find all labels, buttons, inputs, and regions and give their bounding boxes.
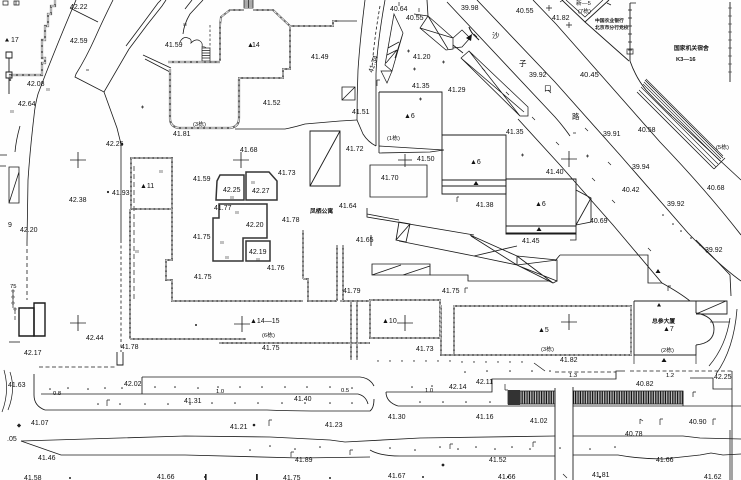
svg-text:41.35: 41.35 (412, 83, 430, 90)
svg-text:42.14: 42.14 (449, 384, 467, 391)
svg-text:41.58: 41.58 (24, 475, 42, 480)
svg-text:41.49: 41.49 (311, 54, 329, 61)
svg-text:9: 9 (8, 222, 12, 229)
svg-text:41.81: 41.81 (173, 131, 191, 138)
svg-text:41.89: 41.89 (295, 457, 313, 464)
svg-text:沙: 沙 (492, 31, 500, 40)
svg-text:总参大厦: 总参大厦 (652, 317, 675, 325)
svg-text:40.64: 40.64 (390, 6, 408, 13)
svg-text:42.20: 42.20 (20, 227, 38, 234)
svg-text:40.78: 40.78 (625, 431, 643, 438)
svg-text:口: 口 (544, 84, 552, 93)
svg-text:42.11: 42.11 (476, 379, 493, 386)
svg-text:41.81: 41.81 (592, 472, 610, 479)
svg-text:K3—16: K3—16 (676, 57, 696, 63)
svg-text:42.08: 42.08 (27, 81, 45, 88)
svg-text:42.27: 42.27 (252, 188, 270, 195)
svg-text:41.20: 41.20 (413, 54, 431, 61)
svg-text:42.38: 42.38 (69, 197, 87, 204)
svg-text:▲14—15: ▲14—15 (250, 318, 280, 325)
svg-text:17: 17 (11, 37, 19, 44)
svg-text:41.79: 41.79 (343, 288, 361, 295)
svg-text:42.25: 42.25 (714, 374, 732, 381)
svg-text:41.66: 41.66 (157, 474, 175, 480)
svg-text:(5栋): (5栋) (716, 143, 729, 151)
svg-text:41.82: 41.82 (560, 357, 578, 364)
svg-text:42.64: 42.64 (18, 101, 36, 108)
svg-text:0.8: 0.8 (53, 391, 61, 397)
svg-text:41.63: 41.63 (8, 382, 26, 389)
svg-text:41.70: 41.70 (381, 175, 399, 182)
svg-text:40.42: 40.42 (622, 187, 640, 194)
svg-text:41.07: 41.07 (31, 420, 49, 427)
svg-text:41.77: 41.77 (214, 205, 232, 212)
svg-text:41.29: 41.29 (448, 87, 466, 94)
svg-text:40.55: 40.55 (406, 15, 424, 22)
svg-text:41.68: 41.68 (240, 147, 258, 154)
svg-text:41.73: 41.73 (278, 170, 296, 177)
svg-text:▲6: ▲6 (404, 113, 415, 120)
svg-text:39.98: 39.98 (461, 5, 479, 12)
svg-text:41.75: 41.75 (194, 274, 212, 281)
svg-text:路: 路 (572, 111, 580, 121)
svg-text:(3栋): (3栋) (193, 120, 206, 128)
svg-text:42.59: 42.59 (70, 38, 88, 45)
svg-text:41.34: 41.34 (368, 55, 380, 74)
svg-text:▲6: ▲6 (470, 159, 481, 166)
svg-text:41.46: 41.46 (38, 455, 56, 462)
svg-text:41.21: 41.21 (230, 424, 248, 431)
svg-text:42.25: 42.25 (106, 141, 124, 148)
svg-text:42.44: 42.44 (86, 335, 104, 342)
svg-text:1.0: 1.0 (216, 389, 224, 395)
svg-text:▲5: ▲5 (538, 327, 549, 334)
svg-text:41.40: 41.40 (294, 396, 312, 403)
svg-text:42.20: 42.20 (246, 222, 264, 229)
svg-text:(7栋): (7栋) (578, 7, 591, 15)
svg-text:41.45: 41.45 (522, 238, 540, 245)
svg-text:40.55: 40.55 (516, 8, 534, 15)
svg-text:40.45: 40.45 (580, 70, 599, 79)
svg-text:41.52: 41.52 (263, 100, 281, 107)
svg-text:41.93: 41.93 (112, 190, 130, 197)
svg-text:41.16: 41.16 (476, 414, 494, 421)
svg-text:41.40: 41.40 (546, 169, 564, 176)
svg-text:42.25: 42.25 (223, 187, 241, 194)
svg-text:中国农业银行: 中国农业银行 (595, 17, 624, 24)
svg-text:41.23: 41.23 (325, 422, 343, 429)
svg-text:39.92: 39.92 (705, 247, 723, 254)
svg-text:41.38: 41.38 (476, 202, 494, 209)
svg-text:新—5: 新—5 (576, 0, 591, 7)
svg-text:.05: .05 (7, 436, 17, 443)
svg-text:▲7: ▲7 (663, 326, 674, 333)
svg-text:41.50: 41.50 (417, 156, 435, 163)
svg-text:75: 75 (10, 284, 16, 290)
svg-text:41.76: 41.76 (267, 265, 285, 272)
svg-text:41.72: 41.72 (346, 146, 364, 153)
svg-text:40.58: 40.58 (638, 127, 656, 134)
svg-text:41.75: 41.75 (442, 288, 460, 295)
svg-text:40.69: 40.69 (590, 218, 608, 225)
svg-text:39.94: 39.94 (632, 164, 650, 171)
svg-text:42.02: 42.02 (124, 381, 142, 388)
svg-text:▲6: ▲6 (535, 201, 546, 208)
svg-text:41.31: 41.31 (184, 398, 202, 405)
svg-text:41.75: 41.75 (283, 475, 301, 480)
svg-text:41.64: 41.64 (339, 203, 357, 210)
svg-text:▲11: ▲11 (140, 183, 154, 190)
svg-text:40.68: 40.68 (707, 185, 725, 192)
svg-text:北京市分行党校: 北京市分行党校 (595, 24, 629, 31)
svg-text:国家机关宿舍: 国家机关宿舍 (674, 44, 709, 52)
svg-text:41.75: 41.75 (193, 234, 211, 241)
svg-text:39.92: 39.92 (529, 72, 547, 79)
svg-text:41.59: 41.59 (193, 176, 211, 183)
svg-text:41.02: 41.02 (530, 418, 548, 425)
svg-text:(2栋): (2栋) (661, 346, 674, 354)
svg-text:(1栋): (1栋) (387, 134, 400, 142)
svg-text:42.19: 42.19 (249, 249, 267, 256)
svg-text:42.22: 42.22 (70, 4, 88, 11)
svg-text:40.90: 40.90 (689, 419, 707, 426)
svg-text:▲10: ▲10 (382, 318, 397, 325)
svg-text:41.78: 41.78 (282, 217, 300, 224)
svg-text:39.92: 39.92 (667, 201, 685, 208)
svg-text:(6栋): (6栋) (262, 331, 275, 339)
svg-text:1.0: 1.0 (425, 388, 433, 394)
svg-text:(3栋): (3栋) (541, 345, 554, 353)
svg-text:41.35: 41.35 (506, 129, 524, 136)
svg-text:41.73: 41.73 (416, 346, 434, 353)
svg-text:1.2: 1.2 (666, 373, 674, 379)
svg-text:41.67: 41.67 (388, 473, 406, 480)
svg-text:41.52: 41.52 (489, 457, 507, 464)
svg-text:41.78: 41.78 (121, 344, 139, 351)
svg-text:41.30: 41.30 (388, 414, 406, 421)
svg-text:41.62: 41.62 (704, 474, 722, 480)
svg-text:凤栖公寓: 凤栖公寓 (310, 207, 333, 215)
svg-text:子: 子 (519, 59, 527, 68)
svg-text:41.66: 41.66 (656, 457, 674, 464)
svg-text:41.66: 41.66 (498, 474, 516, 480)
svg-text:1.3: 1.3 (569, 373, 577, 379)
svg-text:0.5: 0.5 (341, 388, 349, 394)
svg-text:41.75: 41.75 (262, 345, 280, 352)
svg-text:41.82: 41.82 (552, 15, 570, 22)
svg-text:40.82: 40.82 (636, 381, 654, 388)
svg-text:41.65: 41.65 (356, 237, 374, 244)
svg-text:41.59: 41.59 (165, 42, 183, 49)
svg-text:39.91: 39.91 (603, 131, 621, 138)
svg-text:▲: ▲ (247, 42, 254, 49)
svg-text:41.51: 41.51 (352, 109, 370, 116)
svg-text:42.17: 42.17 (24, 350, 42, 357)
